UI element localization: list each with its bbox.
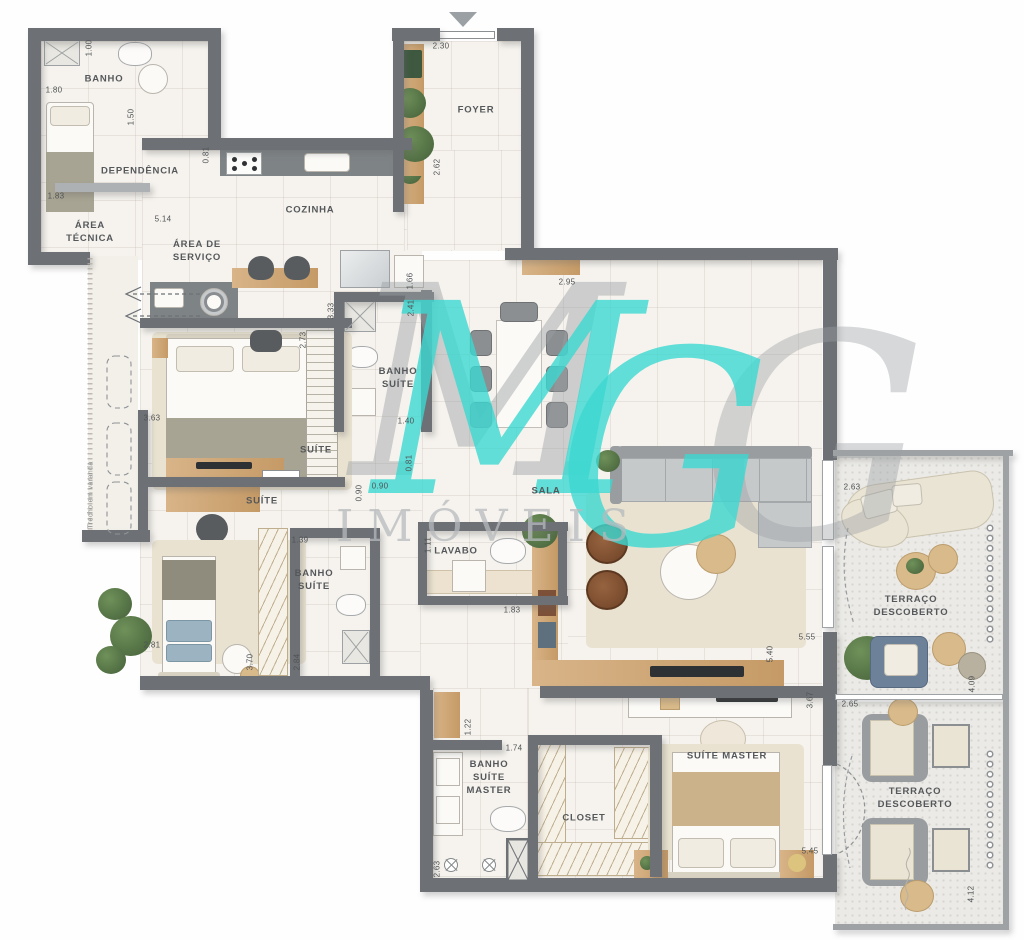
wall [208,28,221,143]
wall [418,522,568,531]
wall [28,28,41,265]
wall [822,460,834,540]
wall [28,252,90,265]
wall [558,522,567,604]
wall [421,290,432,432]
wall [290,528,300,680]
wall [420,878,837,892]
wall [28,28,221,41]
entrance-arrow-icon [449,12,477,27]
wall [1003,450,1009,930]
wall [290,528,378,538]
wall [833,450,1013,456]
wall [835,694,1003,700]
wall [521,28,534,251]
wall [140,477,345,487]
wall [142,138,412,150]
wall [334,292,344,432]
wall [650,735,662,877]
wall [418,596,568,605]
floor-plan-canvas: M G M G IMÓVEIS BANHODEPENDÊNCIAÁREA TÉC… [0,0,1024,940]
wall [833,924,1009,930]
wall [138,410,148,534]
wall [393,40,404,212]
wall [55,183,150,192]
wall [370,528,380,688]
wall-layer [0,0,1024,940]
wall [822,546,834,628]
wall [420,690,433,880]
wall [528,735,658,745]
wall [140,676,430,690]
wall [82,530,150,542]
wall [506,838,530,882]
wall [540,686,836,698]
wall [505,248,838,260]
wall [334,292,434,302]
wall [418,522,427,604]
wall [140,318,352,328]
wall [822,765,832,855]
wall [430,740,502,750]
wall [823,248,837,460]
